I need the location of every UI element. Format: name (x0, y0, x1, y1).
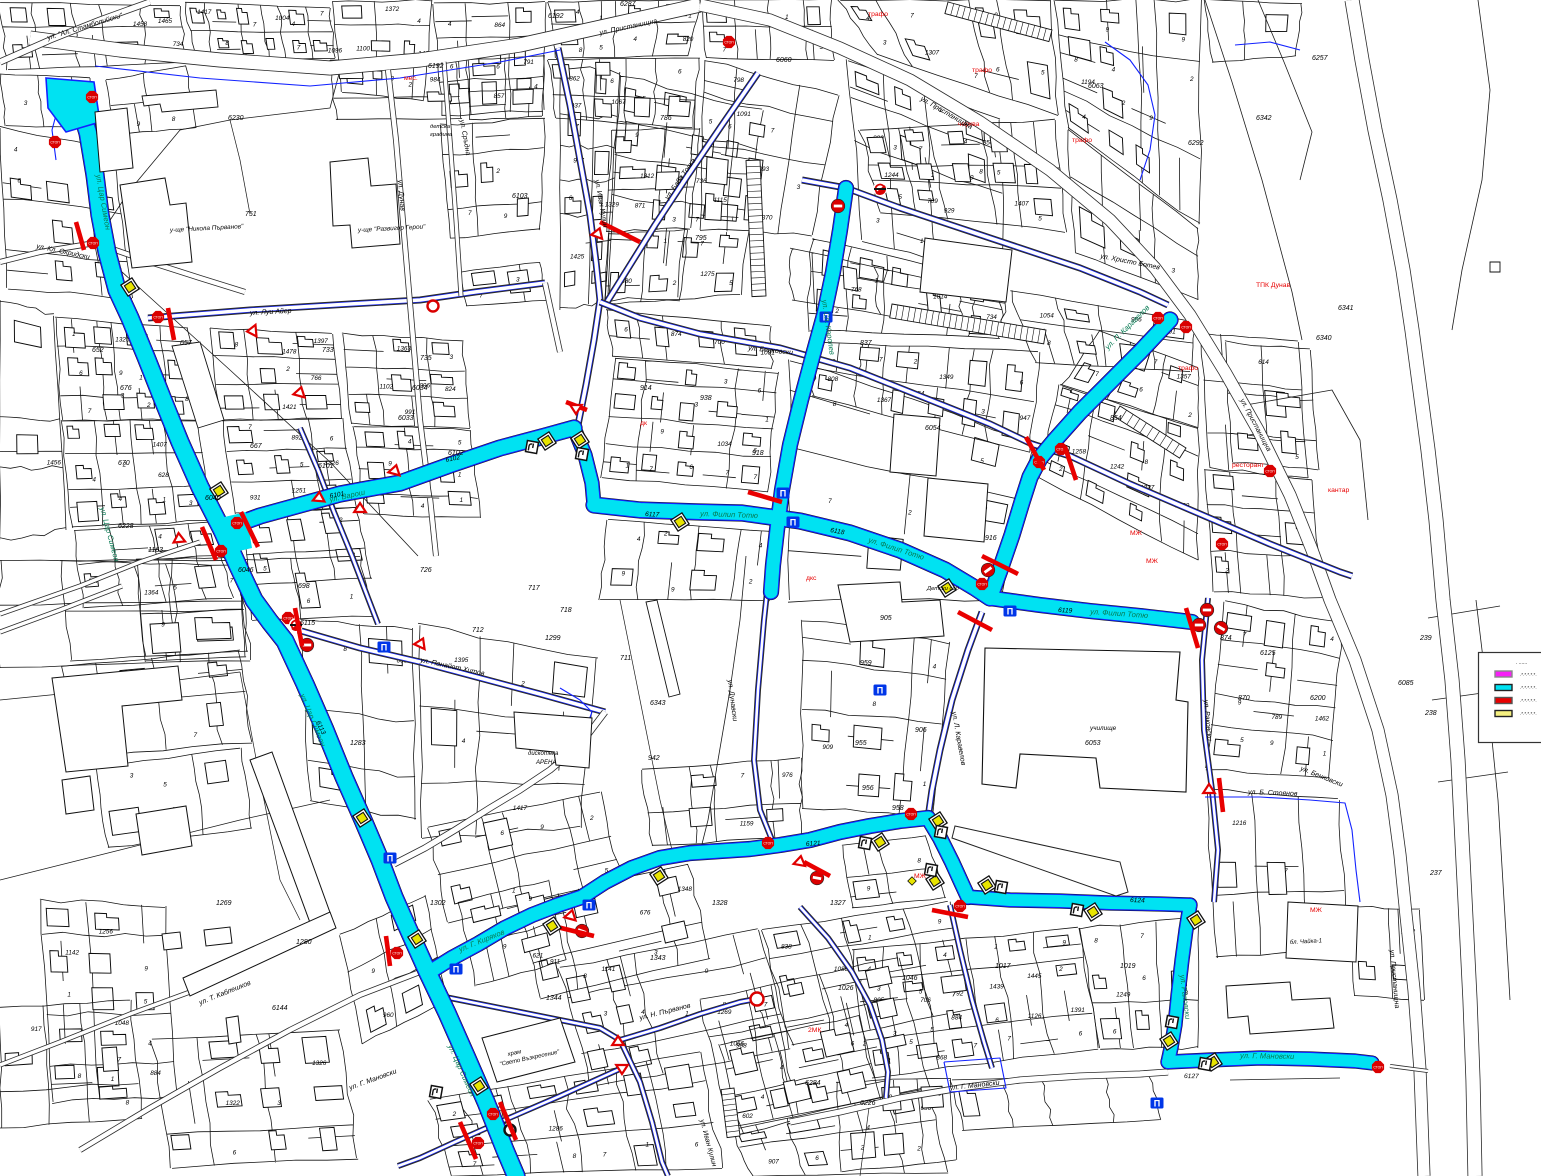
svg-text:786: 786 (660, 115, 672, 122)
svg-text:1: 1 (664, 238, 668, 245)
svg-text:4: 4 (408, 439, 412, 446)
svg-text:ресторант: ресторант (1232, 462, 1264, 469)
svg-text:1456: 1456 (47, 460, 62, 467)
svg-text:4: 4 (933, 664, 937, 671)
svg-text:1269: 1269 (216, 900, 232, 907)
svg-text:1326: 1326 (312, 1060, 327, 1067)
svg-text:СТОП: СТОП (216, 550, 226, 554)
svg-text:1299: 1299 (545, 635, 561, 642)
svg-text:6: 6 (728, 124, 732, 131)
svg-text:1: 1 (72, 331, 76, 338)
svg-text:9: 9 (1062, 940, 1066, 947)
svg-text:2: 2 (285, 366, 290, 373)
svg-text:1251: 1251 (292, 488, 307, 495)
svg-text:931: 931 (250, 495, 261, 502)
svg-text:9: 9 (1106, 27, 1110, 34)
svg-text:6226: 6226 (860, 1100, 876, 1107)
svg-text:884: 884 (951, 1014, 962, 1021)
svg-text:МЖ: МЖ (1310, 907, 1323, 914)
svg-text:3: 3 (277, 1100, 281, 1107)
svg-text:1327: 1327 (830, 900, 847, 907)
svg-text:6: 6 (610, 78, 614, 85)
svg-text:7: 7 (1007, 1035, 1011, 1042)
svg-text:1329: 1329 (605, 201, 620, 208)
svg-text:1: 1 (139, 374, 143, 381)
svg-text:6034: 6034 (412, 385, 428, 392)
svg-text:дк: дк (640, 420, 647, 427)
svg-text:1357: 1357 (1177, 374, 1192, 381)
svg-text:3: 3 (893, 144, 897, 151)
svg-text:676: 676 (640, 909, 651, 916)
svg-text:938: 938 (700, 395, 712, 402)
svg-text:667: 667 (250, 443, 263, 450)
svg-text:3: 3 (672, 217, 676, 224)
svg-text:. ......: . ...... (1516, 660, 1527, 666)
svg-text:6: 6 (815, 1155, 819, 1162)
svg-text:239: 239 (1419, 635, 1432, 642)
svg-text:3: 3 (695, 401, 699, 408)
svg-text:751: 751 (245, 211, 257, 218)
svg-text:9: 9 (371, 968, 375, 975)
svg-text:5: 5 (1295, 454, 1299, 461)
svg-text:П: П (877, 685, 883, 695)
svg-text:4: 4 (761, 1094, 765, 1101)
svg-text:7: 7 (974, 1043, 978, 1050)
svg-text:9: 9 (622, 571, 626, 578)
svg-text:1348: 1348 (678, 886, 693, 893)
svg-text:1126: 1126 (1028, 1013, 1042, 1020)
svg-text:дкс: дкс (806, 575, 817, 582)
svg-text:734: 734 (173, 41, 184, 48)
svg-text:5: 5 (458, 440, 462, 447)
svg-text:907: 907 (768, 1158, 779, 1165)
svg-text:1066: 1066 (730, 1041, 745, 1048)
svg-text:2: 2 (1224, 567, 1229, 574)
svg-text:3: 3 (130, 772, 134, 779)
svg-text:914: 914 (640, 385, 652, 392)
svg-text:7: 7 (754, 474, 758, 481)
svg-text:7: 7 (230, 578, 234, 585)
svg-text:4: 4 (14, 146, 18, 153)
svg-text:602: 602 (742, 1113, 753, 1120)
svg-text:6063: 6063 (1088, 83, 1104, 90)
svg-text:1: 1 (646, 1142, 650, 1149)
svg-text:2МК: 2МК (808, 1027, 821, 1034)
svg-text:984: 984 (430, 76, 441, 83)
svg-text:дискотека: дискотека (528, 751, 559, 757)
svg-text:СТОП: СТОП (232, 522, 242, 526)
svg-text:1312: 1312 (640, 173, 655, 180)
svg-text:1322: 1322 (226, 1100, 241, 1107)
svg-text:1462: 1462 (1315, 715, 1330, 722)
svg-text:8: 8 (1074, 56, 1078, 63)
svg-text:709: 709 (927, 198, 938, 205)
svg-text:МЖ: МЖ (1130, 530, 1143, 537)
svg-text:8: 8 (225, 40, 229, 47)
svg-text:9: 9 (970, 175, 974, 182)
svg-text:4: 4 (448, 21, 452, 28)
svg-text:9: 9 (867, 886, 871, 893)
svg-text:6085: 6085 (1398, 680, 1414, 687)
svg-text:7: 7 (88, 408, 92, 415)
svg-text:874: 874 (1220, 635, 1232, 642)
svg-text:2: 2 (916, 1145, 921, 1152)
svg-text:735: 735 (420, 355, 432, 362)
svg-text:МЖ: МЖ (1146, 558, 1159, 565)
svg-text:1054: 1054 (1040, 313, 1055, 320)
svg-text:4: 4 (1330, 636, 1334, 643)
svg-text:959: 959 (860, 660, 872, 667)
svg-text:798: 798 (733, 77, 744, 84)
svg-text:6: 6 (995, 1017, 999, 1024)
svg-text:4: 4 (964, 139, 968, 146)
svg-text:942: 942 (648, 755, 660, 762)
svg-text:1478: 1478 (282, 349, 297, 356)
svg-text:6292: 6292 (1188, 140, 1204, 147)
svg-text:7: 7 (649, 466, 653, 473)
svg-text:2: 2 (834, 308, 839, 315)
svg-text:698: 698 (298, 583, 310, 590)
svg-text:2: 2 (1189, 76, 1194, 83)
svg-text:СТОП: СТОП (1217, 543, 1227, 547)
svg-text:П: П (1007, 606, 1013, 616)
svg-text:.*.*.*.*.*.: .*.*.*.*.*. (1520, 685, 1537, 690)
svg-text:6: 6 (996, 66, 1000, 73)
svg-text:5: 5 (163, 782, 167, 789)
svg-text:868: 868 (936, 1055, 947, 1062)
svg-text:862: 862 (569, 76, 580, 83)
svg-text:2: 2 (589, 815, 594, 822)
svg-text:5: 5 (1041, 69, 1045, 76)
svg-text:3: 3 (121, 393, 125, 400)
svg-text:П: П (780, 488, 786, 498)
svg-text:909: 909 (822, 744, 833, 751)
svg-text:6117: 6117 (645, 511, 660, 519)
svg-text:1425: 1425 (570, 254, 585, 261)
svg-text:1141: 1141 (602, 966, 616, 973)
svg-text:6200: 6200 (1310, 695, 1326, 702)
svg-text:8: 8 (873, 701, 877, 708)
svg-text:1307: 1307 (925, 49, 940, 56)
svg-text:градина: градина (430, 132, 453, 138)
svg-text:3: 3 (516, 277, 520, 284)
svg-text:795: 795 (695, 235, 707, 242)
svg-text:8: 8 (979, 169, 983, 176)
svg-text:1: 1 (765, 417, 769, 424)
svg-text:детска: детска (430, 124, 451, 130)
svg-text:9: 9 (1149, 115, 1153, 122)
svg-text:9: 9 (137, 121, 141, 128)
svg-text:5: 5 (980, 458, 984, 465)
svg-text:628: 628 (158, 472, 169, 479)
svg-text:1159: 1159 (740, 820, 754, 827)
svg-text:ТПК Дунав: ТПК Дунав (1256, 282, 1291, 289)
svg-text:1397: 1397 (314, 338, 329, 345)
svg-text:6: 6 (695, 1142, 699, 1149)
svg-text:7: 7 (248, 424, 252, 431)
svg-text:2: 2 (1121, 100, 1126, 107)
svg-text:4: 4 (1112, 67, 1116, 74)
svg-text:.*.*.*.*.*.: .*.*.*.*.*. (1520, 711, 1537, 716)
svg-text:СТОП: СТОП (763, 842, 773, 846)
svg-text:.*.*.*.*.*.: .*.*.*.*.*. (1520, 672, 1537, 677)
svg-text:6103: 6103 (512, 193, 528, 200)
svg-text:960: 960 (383, 1012, 394, 1019)
svg-text:3: 3 (1172, 268, 1176, 275)
svg-text:7: 7 (253, 22, 257, 29)
svg-text:1096: 1096 (328, 47, 343, 54)
svg-text:СТОП: СТОП (1153, 317, 1163, 321)
svg-text:808: 808 (828, 376, 839, 383)
svg-text:711: 711 (620, 655, 631, 662)
svg-text:6: 6 (678, 69, 682, 76)
svg-text:7: 7 (919, 146, 923, 153)
svg-text:СТОП: СТОП (473, 1142, 483, 1146)
svg-text:9: 9 (119, 370, 123, 377)
svg-text:СТОП: СТОП (977, 583, 987, 587)
svg-text:1091: 1091 (737, 111, 752, 118)
svg-text:1: 1 (67, 992, 71, 999)
svg-text:837: 837 (860, 340, 873, 347)
svg-text:1302: 1302 (430, 900, 446, 907)
svg-text:956: 956 (862, 785, 874, 792)
svg-text:6: 6 (1079, 1031, 1083, 1038)
svg-text:7: 7 (879, 357, 883, 364)
svg-text:4: 4 (576, 9, 580, 16)
svg-text:6125: 6125 (1260, 650, 1276, 657)
svg-text:4: 4 (92, 477, 96, 484)
svg-text:1395: 1395 (454, 657, 469, 664)
svg-text:238: 238 (1424, 710, 1437, 717)
svg-text:3: 3 (189, 500, 193, 507)
svg-text:3: 3 (450, 354, 454, 361)
svg-text:1: 1 (920, 238, 924, 245)
svg-text:1244: 1244 (884, 172, 899, 179)
svg-text:733: 733 (322, 347, 334, 354)
svg-text:8: 8 (833, 401, 837, 408)
svg-text:9: 9 (388, 460, 392, 467)
svg-text:трафо: трафо (972, 67, 992, 74)
svg-text:916: 916 (985, 535, 997, 542)
svg-text:СТОП: СТОП (1373, 1066, 1383, 1070)
svg-text:1: 1 (111, 1076, 115, 1083)
svg-text:1: 1 (868, 935, 872, 942)
svg-text:791: 791 (523, 59, 534, 66)
svg-text:трафо: трафо (1178, 365, 1198, 372)
svg-text:4: 4 (534, 83, 538, 90)
svg-text:6: 6 (233, 1149, 237, 1156)
svg-text:1017: 1017 (995, 963, 1012, 970)
svg-text:905: 905 (880, 615, 892, 622)
svg-text:СТОП: СТОП (955, 905, 965, 909)
svg-text:6343: 6343 (650, 700, 666, 707)
svg-text:СТОП: СТОП (724, 41, 734, 45)
svg-text:2: 2 (1187, 412, 1192, 419)
svg-text:7: 7 (118, 1057, 122, 1064)
svg-text:8: 8 (583, 973, 587, 980)
svg-text:8: 8 (917, 858, 921, 865)
svg-text:П: П (387, 853, 393, 863)
svg-text:2: 2 (146, 402, 151, 409)
svg-text:8: 8 (579, 47, 583, 54)
svg-text:1286: 1286 (549, 1126, 564, 1133)
svg-text:СТОП: СТОП (88, 242, 98, 246)
svg-text:7: 7 (726, 470, 730, 477)
svg-text:2: 2 (663, 531, 668, 538)
svg-text:7: 7 (974, 73, 978, 80)
svg-text:1: 1 (1323, 751, 1327, 758)
svg-text:6033: 6033 (398, 415, 414, 422)
svg-text:7: 7 (603, 1152, 607, 1159)
svg-text:СТОП: СТОП (87, 96, 97, 100)
svg-text:614: 614 (1258, 359, 1269, 366)
svg-text:5: 5 (173, 585, 177, 592)
svg-text:6: 6 (17, 177, 21, 184)
svg-text:958: 958 (892, 805, 904, 812)
svg-text:1283: 1283 (350, 740, 366, 747)
svg-text:СТОП: СТОП (906, 813, 916, 817)
svg-text:7: 7 (764, 1002, 768, 1009)
svg-text:1: 1 (350, 593, 354, 600)
svg-text:1421: 1421 (282, 404, 297, 411)
svg-text:9: 9 (660, 428, 664, 435)
svg-text:9: 9 (161, 622, 165, 629)
svg-text:6341: 6341 (1338, 305, 1354, 312)
svg-text:947: 947 (1020, 415, 1031, 422)
svg-text:5: 5 (919, 989, 923, 996)
svg-text:5: 5 (144, 998, 148, 1005)
svg-text:П: П (453, 964, 459, 974)
svg-text:8: 8 (573, 1153, 577, 1160)
svg-text:9: 9 (938, 919, 942, 926)
svg-text:П: П (381, 642, 387, 652)
svg-text:1417: 1417 (197, 9, 212, 16)
svg-text:1328: 1328 (712, 900, 728, 907)
svg-text:8: 8 (1145, 459, 1149, 466)
svg-text:1: 1 (163, 497, 167, 504)
svg-text:СТОП: СТОП (488, 1113, 498, 1117)
svg-text:1439: 1439 (990, 983, 1005, 990)
svg-text:П: П (1154, 1098, 1160, 1108)
svg-text:838: 838 (781, 943, 792, 950)
svg-text:820: 820 (683, 36, 694, 43)
svg-text:4: 4 (866, 1125, 870, 1132)
svg-text:1349: 1349 (939, 374, 954, 381)
svg-text:4: 4 (462, 738, 466, 745)
svg-text:6: 6 (1142, 975, 1146, 982)
svg-text:6: 6 (1113, 1029, 1117, 1036)
svg-text:1256: 1256 (99, 929, 114, 936)
svg-text:1034: 1034 (717, 441, 732, 448)
svg-text:2: 2 (495, 168, 500, 175)
svg-text:СТОП: СТОП (1181, 326, 1191, 330)
svg-text:6121: 6121 (806, 840, 821, 848)
svg-text:7: 7 (1243, 632, 1247, 639)
svg-text:1046: 1046 (902, 975, 918, 982)
svg-text:2: 2 (672, 280, 677, 287)
svg-text:6115: 6115 (300, 620, 315, 627)
svg-text:7: 7 (952, 991, 956, 998)
svg-text:6257: 6257 (1312, 55, 1329, 62)
svg-text:2: 2 (1058, 966, 1063, 973)
svg-text:824: 824 (445, 386, 456, 393)
svg-text:1: 1 (460, 497, 464, 504)
svg-text:9: 9 (705, 968, 709, 975)
svg-text:7: 7 (297, 45, 301, 52)
svg-text:1019: 1019 (1120, 963, 1136, 970)
svg-text:ул. Г. Мановски: ул. Г. Мановски (1239, 1051, 1295, 1061)
svg-text:3: 3 (24, 100, 28, 107)
svg-text:6144: 6144 (272, 1005, 288, 1012)
svg-text:955: 955 (855, 740, 867, 747)
svg-text:5: 5 (709, 119, 713, 126)
svg-text:857: 857 (494, 93, 505, 100)
svg-text:6102: 6102 (448, 450, 464, 457)
svg-text:789: 789 (1272, 714, 1283, 721)
svg-text:766: 766 (311, 375, 322, 382)
svg-text:4: 4 (943, 952, 947, 959)
svg-text:2: 2 (907, 510, 912, 517)
svg-text:6: 6 (851, 1041, 855, 1048)
svg-text:5: 5 (1240, 737, 1244, 744)
svg-text:7: 7 (910, 13, 914, 20)
svg-text:1367: 1367 (877, 397, 892, 404)
svg-text:8: 8 (1047, 340, 1051, 347)
svg-text:9: 9 (671, 586, 675, 593)
svg-text:7: 7 (473, 1161, 477, 1168)
svg-text:676: 676 (120, 385, 132, 392)
svg-text:СТОП: СТОП (153, 316, 163, 320)
svg-text:1100: 1100 (356, 46, 370, 53)
svg-text:5: 5 (599, 44, 603, 51)
svg-text:1391: 1391 (1071, 1007, 1086, 1014)
svg-text:1372: 1372 (385, 6, 400, 13)
svg-text:8: 8 (172, 116, 176, 123)
svg-text:6119: 6119 (1058, 607, 1073, 615)
svg-text:6228: 6228 (118, 523, 134, 530)
svg-text:6053: 6053 (1085, 740, 1101, 747)
svg-text:8: 8 (235, 342, 239, 349)
svg-text:621: 621 (533, 952, 544, 959)
svg-text:П: П (586, 900, 592, 910)
svg-text:4: 4 (421, 503, 425, 510)
svg-text:5: 5 (300, 461, 304, 468)
svg-text:1: 1 (994, 944, 998, 951)
svg-text:1026: 1026 (838, 985, 854, 992)
svg-text:мес.: мес. (404, 75, 418, 82)
svg-text:1280: 1280 (296, 939, 312, 946)
svg-text:.*.*.*.*.*.: .*.*.*.*.*. (1520, 698, 1537, 703)
svg-text:1004: 1004 (275, 15, 290, 22)
svg-text:9: 9 (144, 966, 148, 973)
svg-text:7: 7 (771, 128, 775, 135)
svg-text:П: П (790, 517, 796, 527)
svg-text:3: 3 (981, 408, 985, 415)
svg-text:1364: 1364 (144, 590, 159, 597)
svg-text:5: 5 (1038, 216, 1042, 223)
svg-text:Детски сад: Детски сад (926, 586, 960, 592)
svg-text:7: 7 (1140, 933, 1144, 940)
svg-text:1142: 1142 (65, 949, 79, 956)
svg-text:6230: 6230 (228, 115, 244, 122)
svg-text:884: 884 (150, 1070, 161, 1077)
svg-text:1: 1 (626, 462, 630, 469)
svg-text:6: 6 (79, 370, 83, 377)
svg-text:7: 7 (468, 210, 472, 217)
svg-text:918: 918 (752, 450, 764, 457)
svg-text:МЖ: МЖ (914, 873, 927, 880)
svg-text:1275: 1275 (700, 271, 715, 278)
